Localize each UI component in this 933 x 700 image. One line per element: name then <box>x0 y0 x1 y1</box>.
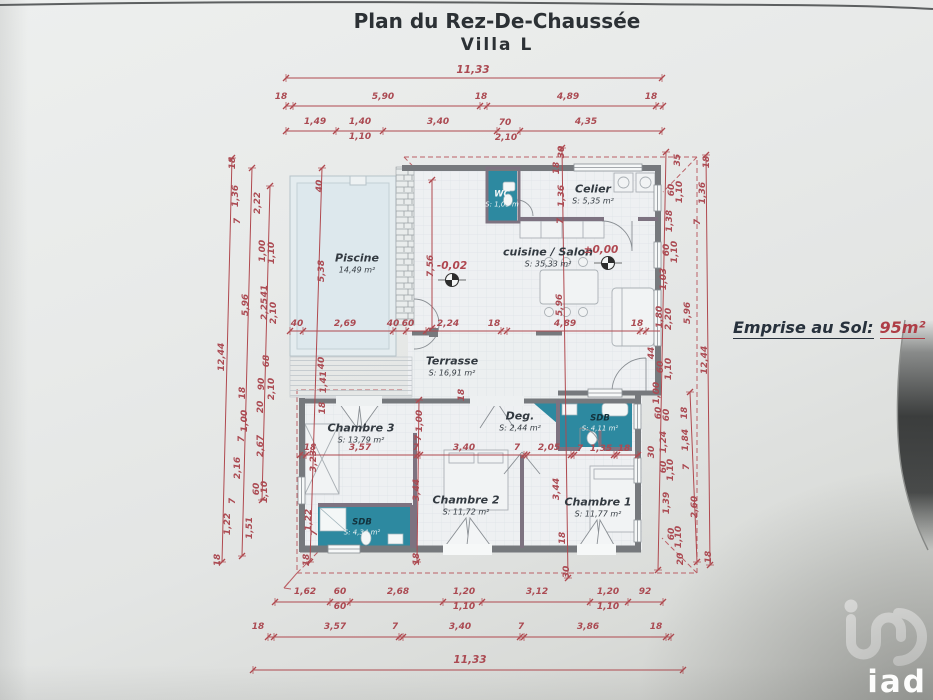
dim-label-top2-4: 18 <box>645 92 658 102</box>
room-label-sdb-2: SDB S: 4,34 m² <box>344 518 380 537</box>
dim-label-bottom1-0: 1,62 <box>294 587 316 597</box>
dim-label-left-9: 2,10 <box>269 302 279 324</box>
dim-label-inner_row-6: 7 <box>577 444 583 454</box>
footprint-label: Emprise au Sol: <box>733 318 874 339</box>
dim-label-left-22: 7 <box>228 498 238 504</box>
dim-label-right-12: 5,96 <box>683 302 693 324</box>
dim-label-left-1: 1,36 <box>231 185 241 207</box>
dim-label-left-25: 18 <box>213 554 223 567</box>
dim-label-left-23: 1,22 <box>223 513 233 535</box>
dim-label-mid-6: 4,89 <box>554 319 576 329</box>
dim-label-right-21: 1,24 <box>659 431 669 453</box>
dim-label-left-5: 1,10 <box>267 242 277 264</box>
dim-label-top3-0: 1,49 <box>304 117 326 127</box>
dim-label-right-31: 20 <box>676 553 686 566</box>
dim-label-top3-3: 70 <box>499 118 512 128</box>
dim-label-right-5: 1,38 <box>665 210 675 232</box>
room-label-chambre-1: Chambre 1 S: 11,77 m² <box>564 496 631 519</box>
dim-label-bottom1-4: 3,12 <box>526 587 548 597</box>
dim-label-right-30: 1,10 <box>674 526 684 548</box>
dim-label-inner_row-2: 7 <box>413 443 419 453</box>
level-value-salon: ±0,00 <box>584 244 619 256</box>
dim-label-left-14: 18 <box>238 387 248 400</box>
dim-label-bottom1-6: 92 <box>639 587 652 597</box>
dim-label-top2-0: 18 <box>275 92 288 102</box>
level-value-terrasse: -0,02 <box>437 260 467 272</box>
footprint-annotation: Emprise au Sol:95m² <box>733 318 925 337</box>
dim-label-right-9: 1,03 <box>659 268 669 290</box>
dim-label-center_col-5: 18 <box>558 532 568 545</box>
dim-label-bottom1-1: 60 <box>334 587 347 597</box>
dim-label-bottom1-3: 1,20 <box>453 587 475 597</box>
dim-label-left-10: 12,44 <box>217 343 227 371</box>
room-label-sdb-1: SDB S: 4,11 m² <box>582 414 618 433</box>
dim-label-left-12: 90 <box>257 378 267 391</box>
dim-label-bottom2-4: 7 <box>518 622 524 632</box>
dim-label-left-24: 1,51 <box>245 517 255 539</box>
dim-label-left_wall-4: 18 <box>318 402 328 415</box>
dim-label-right-15: 1,10 <box>664 358 674 380</box>
dim-label-mid-1: 2,69 <box>334 319 356 329</box>
dim-label-top3-2: 3,40 <box>427 117 449 127</box>
room-label-terrasse: Terrasse S: 16,91 m² <box>426 355 478 378</box>
dim-label-mid-4: 2,24 <box>437 319 459 329</box>
dim-label-bottom1-5: 1,20 <box>597 587 619 597</box>
dim-label-mid-3: 60 <box>402 319 415 329</box>
dim-label-right-17: 1,00 <box>652 382 662 404</box>
dim-label-inner_row-3: 3,40 <box>453 443 475 453</box>
dim-label-center_col-0: 30 <box>557 146 567 159</box>
dim-label-inner_row-8: 18 <box>618 444 631 454</box>
dim-label-center_col-2: 1,36 <box>557 185 567 207</box>
dim-label-left_wall-6: 1,22 <box>304 509 314 531</box>
dim-label-interior-3: 7 <box>414 435 424 441</box>
iad-logo-icon <box>845 600 923 662</box>
dim-label-center_col-1: 18 <box>552 162 562 175</box>
dim-label-left-2: 2,22 <box>253 192 263 214</box>
dim-label-right-27: 1,39 <box>662 492 672 514</box>
dim-label-top3-4: 4,35 <box>575 117 597 127</box>
dim-label-bottom2-1: 3,57 <box>324 622 346 632</box>
dim-label-bottom2-3: 3,40 <box>449 622 471 632</box>
dim-label-center_col-4: 5,96 <box>555 294 565 316</box>
dim-label-top2-1: 5,90 <box>372 92 394 102</box>
dim-label-right-16: 12,44 <box>700 346 710 374</box>
dim-label-left-13: 2,10 <box>267 378 277 400</box>
room-label-degagement: Deg. S: 2,44 m² <box>499 410 541 433</box>
dim-label-mid-0: 40 <box>291 319 304 329</box>
dim-label-left-15: 20 <box>256 401 266 414</box>
dim-label-center_col-3: 7 <box>556 218 566 224</box>
dim-label-right-8: 1,10 <box>670 241 680 263</box>
dim-label-center_col-6: 30 <box>562 566 572 579</box>
iad-brand-text: iad <box>867 664 927 700</box>
dim-label-right-13: 44 <box>647 347 657 360</box>
hatched-wall-strip <box>396 167 414 325</box>
room-label-wc: WC S: 1,09 m <box>485 190 519 209</box>
dim-label-bottom2-2: 7 <box>392 622 398 632</box>
dim-label-bottom2-0: 18 <box>252 622 265 632</box>
dim-label-top2-3: 4,89 <box>557 92 579 102</box>
room-label-cuisine-salon: cuisine / Salon S: 35,33 m² <box>503 246 593 269</box>
dim-label-mid-5: 18 <box>488 319 501 329</box>
room-label-chambre-2: Chambre 2 S: 11,72 m² <box>432 494 499 517</box>
dim-label-interior-6: 18 <box>412 553 422 566</box>
dim-label-top3_sub-1: 2,10 <box>495 133 517 143</box>
dim-label-right-1: 18 <box>702 156 712 169</box>
dim-label-bottom3-0: 11,33 <box>453 654 486 666</box>
dim-label-left-6: 41 <box>260 285 270 298</box>
dim-label-left-19: 2,16 <box>233 457 243 479</box>
room-label-chambre-3: Chambre 3 S: 13,79 m² <box>327 422 394 445</box>
dim-label-left_wall-2: 40 <box>317 357 327 370</box>
dim-label-left-17: 7 <box>237 436 247 442</box>
dim-label-interior-4: 3,44 <box>412 479 422 501</box>
floor-plan-photo: Plan du Rez-De-Chaussée Villa L Piscine … <box>0 0 933 700</box>
dim-label-top3-1: 1,40 <box>349 117 371 127</box>
dim-label-left-18: 2,67 <box>256 435 266 457</box>
dim-label-left_wall-5: 3,23 <box>309 450 319 472</box>
dim-label-right-11: 2,20 <box>664 308 674 330</box>
dim-label-right-23: 30 <box>647 446 657 459</box>
dim-label-right-3: 1,10 <box>675 181 685 203</box>
dim-label-interior-2: 1,00 <box>415 410 425 432</box>
dim-label-top1-0: 11,33 <box>456 64 489 76</box>
dim-label-inner_row-4: 7 <box>514 443 520 453</box>
dim-label-right-22: 1,84 <box>681 429 691 451</box>
dim-label-right-26: 7 <box>682 464 692 470</box>
footprint-value: 95m² <box>880 318 926 339</box>
dim-label-right-25: 1,10 <box>666 459 676 481</box>
dim-label-left-21: 1,10 <box>260 481 270 503</box>
dim-label-right-32: 18 <box>704 551 714 564</box>
dim-label-bottom1_sub-0: 60 <box>334 602 347 612</box>
dim-label-left_wall-1: 5,38 <box>317 260 327 282</box>
dim-label-mid-2: 40 <box>387 319 400 329</box>
dim-label-right-20: 18 <box>680 407 690 420</box>
dim-label-left_wall-8: 18 <box>302 554 312 567</box>
room-label-celier: Celier S: 5,35 m² <box>572 183 614 206</box>
dim-label-right-6: 7 <box>693 219 703 225</box>
dim-label-bottom1-2: 2,68 <box>387 587 409 597</box>
dim-label-right-19: 60 <box>662 409 672 422</box>
dim-label-right-0: 35 <box>673 154 683 167</box>
dim-label-inner_row-5: 2,05 <box>538 443 560 453</box>
dim-label-interior-1: 18 <box>457 389 467 402</box>
dim-label-left-3: 7 <box>233 218 243 224</box>
page-title: Plan du Rez-De-Chaussée <box>354 9 641 33</box>
dim-label-left-16: 1,00 <box>240 410 250 432</box>
dim-label-bottom2-6: 18 <box>650 622 663 632</box>
dim-label-left_wall-3: 1,41 <box>319 371 329 393</box>
dim-label-left-0: 18 <box>228 157 238 170</box>
dim-label-right-28: 2,60 <box>690 496 700 518</box>
room-label-piscine: Piscine 14,49 m² <box>335 252 379 275</box>
dim-label-bottom2-5: 3,86 <box>577 622 599 632</box>
dim-label-inner_row-7: 1,35 <box>590 444 612 454</box>
dim-label-bottom1_sub-2: 1,10 <box>597 602 619 612</box>
dim-label-top3_sub-0: 1,10 <box>349 132 371 142</box>
dim-label-mid-7: 18 <box>631 319 644 329</box>
dim-label-left-7: 5,96 <box>241 294 251 316</box>
dim-label-left_wall-0: 40 <box>315 180 325 193</box>
dim-label-inner_row-1: 3,57 <box>349 443 371 453</box>
page-subtitle: Villa L <box>461 35 534 55</box>
dim-label-right-4: 1,36 <box>698 182 708 204</box>
terrace-steps <box>290 357 412 397</box>
dim-label-bottom1_sub-1: 1,10 <box>453 602 475 612</box>
dim-label-left_wall-7: 7 <box>310 530 320 536</box>
dim-label-interior-0: 7,56 <box>426 255 436 277</box>
dim-label-left-11: 68 <box>262 355 272 368</box>
dim-label-top2-2: 18 <box>475 92 488 102</box>
dim-label-interior-5: 3,44 <box>552 478 562 500</box>
